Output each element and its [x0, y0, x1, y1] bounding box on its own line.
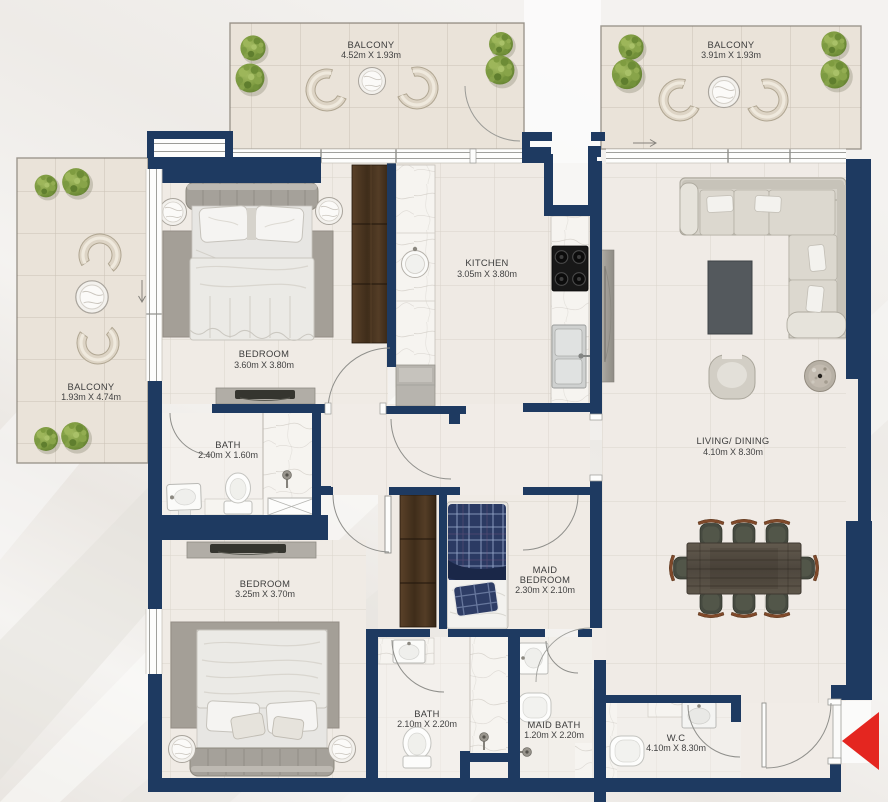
svg-text:BEDROOM: BEDROOM — [240, 578, 291, 589]
svg-text:BEDROOM: BEDROOM — [239, 348, 290, 359]
svg-text:3.60m X 3.80m: 3.60m X 3.80m — [234, 360, 294, 370]
svg-text:4.10m X 8.30m: 4.10m X 8.30m — [646, 743, 706, 753]
svg-text:4.52m X 1.93m: 4.52m X 1.93m — [341, 50, 401, 60]
svg-text:3.91m X 1.93m: 3.91m X 1.93m — [701, 50, 761, 60]
svg-text:BALCONY: BALCONY — [708, 39, 755, 50]
svg-text:2.40m X 1.60m: 2.40m X 1.60m — [198, 450, 258, 460]
svg-text:1.93m X 4.74m: 1.93m X 4.74m — [61, 392, 121, 402]
svg-text:BATH: BATH — [414, 708, 440, 719]
svg-text:2.10m X 2.20m: 2.10m X 2.20m — [397, 719, 457, 729]
svg-text:3.25m X 3.70m: 3.25m X 3.70m — [235, 589, 295, 599]
svg-text:LIVING/ DINING: LIVING/ DINING — [697, 435, 770, 446]
svg-text:4.10m X 8.30m: 4.10m X 8.30m — [703, 447, 763, 457]
svg-text:W.C: W.C — [667, 732, 686, 743]
svg-text:2.30m X 2.10m: 2.30m X 2.10m — [515, 585, 575, 595]
svg-text:1.20m X 2.20m: 1.20m X 2.20m — [524, 730, 584, 740]
svg-text:3.05m X 3.80m: 3.05m X 3.80m — [457, 269, 517, 279]
svg-text:BALCONY: BALCONY — [348, 39, 395, 50]
svg-text:MAID BATH: MAID BATH — [527, 719, 580, 730]
svg-text:BATH: BATH — [215, 439, 241, 450]
svg-text:BALCONY: BALCONY — [68, 381, 115, 392]
svg-text:BEDROOM: BEDROOM — [520, 574, 571, 585]
svg-text:KITCHEN: KITCHEN — [465, 257, 508, 268]
